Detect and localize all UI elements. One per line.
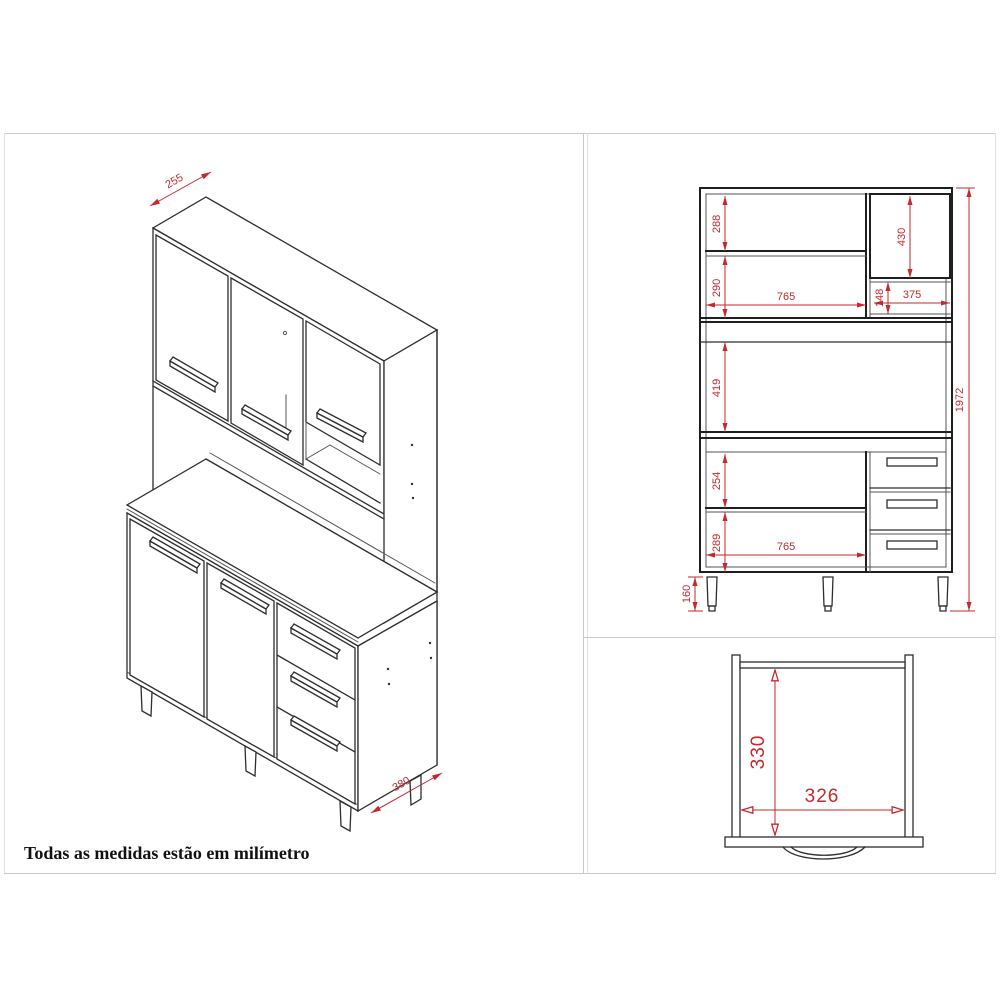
front-view: 288 290 430 765 148 375 419 254 289 765 …	[585, 140, 1000, 635]
dim-148-label: 148	[874, 289, 886, 307]
drawing-canvas: 255 380	[0, 0, 1000, 1000]
dim-375-label: 375	[903, 289, 921, 301]
dim-290-label: 290	[711, 279, 723, 297]
frame-top	[4, 133, 996, 134]
divider-horizontal	[583, 637, 996, 638]
drawer-handle-arc-inner	[791, 847, 857, 855]
dim-430-label: 430	[896, 228, 908, 246]
measurements-note: Todas as medidas estão em milímetro	[24, 843, 310, 864]
divider-vertical	[583, 133, 584, 873]
dim-419-label: 419	[711, 379, 723, 397]
drawer-handle-arc-outer	[783, 847, 865, 859]
frame-bottom	[4, 873, 996, 874]
dim-330-label: 330	[748, 735, 769, 770]
dim-254-label: 254	[711, 472, 723, 490]
top-view-dimensions: 330 326	[742, 670, 903, 835]
dim-288-label: 288	[711, 215, 723, 233]
front-structure	[700, 188, 952, 572]
isometric-view: 255 380	[80, 150, 510, 850]
front-legs	[707, 577, 948, 611]
dim-160-label: 160	[681, 585, 693, 603]
dim-765-top-label: 765	[777, 291, 795, 303]
dim-289-label: 289	[711, 534, 723, 552]
dim-765-bottom-label: 765	[777, 541, 795, 553]
frame-left	[4, 133, 5, 873]
dim-1972-label: 1972	[954, 388, 966, 412]
top-view: 330 326	[585, 640, 1000, 870]
dim-326-label: 326	[805, 786, 840, 807]
